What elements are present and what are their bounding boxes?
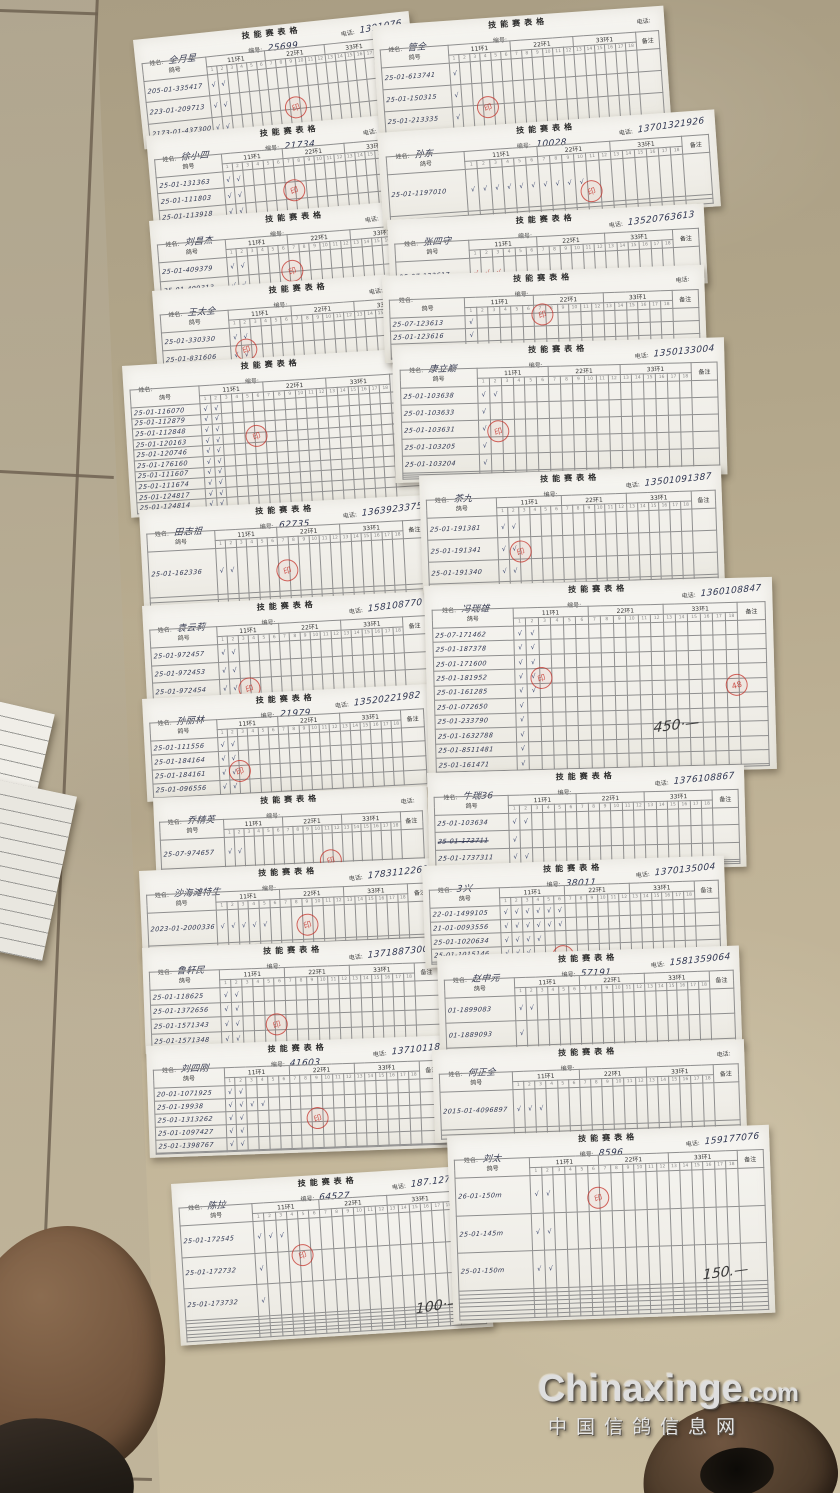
score-cell: [608, 383, 620, 400]
score-cell: [555, 931, 566, 945]
check-mark: √: [502, 545, 506, 553]
score-cell: [359, 393, 370, 404]
score-cell: [580, 311, 592, 325]
score-cell: [285, 398, 296, 409]
note-cell: [637, 48, 662, 71]
score-cell: √: [232, 1002, 243, 1017]
note-cell: [710, 988, 735, 1014]
score-cell: [613, 623, 626, 638]
score-cell: [590, 682, 603, 697]
score-cell: [682, 553, 694, 575]
score-cell: [645, 991, 657, 1016]
check-mark: √: [250, 1100, 254, 1108]
score-cell: √: [202, 435, 213, 446]
score-cell: [377, 1119, 388, 1132]
score-cell: √: [225, 1098, 236, 1111]
score-cell: [538, 625, 551, 640]
score-cell: [664, 665, 677, 680]
phone-label: 电话:: [716, 1050, 731, 1058]
score-cell: [649, 309, 661, 323]
score-cell: [268, 473, 279, 484]
score-cell: [628, 695, 641, 710]
score-cell: [696, 1307, 708, 1312]
phone-field: 电话: 1370135004: [634, 854, 716, 881]
score-cell: [668, 381, 680, 398]
score-cell: [714, 649, 727, 664]
score-cell: [663, 622, 676, 637]
score-cell: [222, 412, 233, 423]
score-cell: [674, 927, 685, 941]
score-cell: [338, 395, 349, 406]
score-cell: [602, 992, 614, 1017]
note-cell: [415, 995, 440, 1010]
check-mark: √: [543, 181, 548, 189]
phone-value: 13520221982: [354, 690, 421, 708]
note-cell: [740, 692, 768, 707]
ring-number-cell: 25-01-191340: [429, 560, 500, 584]
score-cell: √: [509, 813, 521, 831]
score-cell: [351, 1012, 362, 1027]
score-cell: [371, 414, 382, 425]
score-cell: [588, 624, 601, 639]
score-cell: [580, 993, 592, 1018]
score-cell: [620, 382, 632, 399]
score-cell: [393, 756, 404, 771]
score-cell: [610, 451, 622, 468]
score-cell: [331, 760, 342, 775]
score-cell: [271, 1332, 282, 1336]
score-cell: [615, 681, 628, 696]
score-cell: [362, 1012, 373, 1027]
score-cell: [236, 475, 247, 486]
score-cell: [301, 482, 312, 493]
score-cell: [640, 695, 653, 710]
score-cell: [713, 621, 726, 636]
score-cell: [378, 1132, 389, 1145]
score-cell: [661, 308, 673, 322]
score-cell: [491, 454, 503, 471]
score-cell: [702, 825, 714, 843]
ring-number: 25-01-330330: [162, 334, 215, 346]
score-form: 技能赛表格 姓名: 刘太 编号: 8596 电话: 159177076 鸽号 1…: [447, 1125, 775, 1324]
score-cell: [645, 433, 657, 450]
score-cell: [640, 680, 653, 695]
ring-number: 25-01-111556: [151, 741, 204, 752]
score-cell: [688, 989, 700, 1014]
score-cell: [601, 652, 614, 667]
check-mark: √: [525, 852, 529, 860]
score-cell: [626, 310, 638, 324]
score-cell: [287, 440, 298, 451]
score-cell: [540, 697, 553, 712]
check-mark: √: [226, 176, 231, 184]
score-cell: [250, 778, 261, 793]
note-column-header: 备注: [682, 134, 710, 154]
score-cell: [725, 620, 738, 635]
score-cell: √: [204, 467, 215, 478]
check-mark: √: [206, 447, 211, 455]
score-cell: [248, 485, 259, 496]
score-cell: [513, 385, 525, 402]
check-mark: √: [537, 1265, 541, 1273]
score-cell: [603, 310, 615, 324]
score-cell: √: [498, 537, 510, 559]
score-cell: [322, 774, 333, 789]
score-cell: [285, 409, 296, 420]
score-cell: [345, 1133, 356, 1146]
check-mark: √: [493, 390, 497, 398]
score-cell: [609, 400, 621, 417]
score-cell: [566, 740, 579, 755]
score-cell: [684, 899, 695, 913]
score-cell: [578, 711, 591, 726]
score-cell: [525, 402, 537, 419]
phone-field: 电话: 1363923375: [341, 493, 423, 522]
score-cell: √: [489, 386, 501, 403]
score-cell: [263, 986, 274, 1001]
score-cell: [629, 738, 642, 753]
check-mark: √: [512, 818, 516, 826]
score-cell: √: [257, 1097, 268, 1110]
phone-value: 1376108867: [674, 771, 735, 787]
score-cell: [589, 653, 602, 668]
score-cell: [354, 1081, 365, 1094]
ring-number-cell: 25-01-150m: [458, 1251, 534, 1291]
phone-field: 电话: 13501091387: [625, 464, 713, 492]
score-cell: [258, 474, 269, 485]
ring-number: 25-01-161285: [434, 688, 488, 697]
phone-label: 电话:: [334, 701, 349, 710]
score-cell: [592, 1018, 604, 1043]
check-mark: √: [242, 921, 247, 929]
score-cell: [362, 436, 373, 447]
note-column-header: 备注: [712, 789, 738, 808]
check-mark: √: [241, 1139, 245, 1147]
check-mark: √: [530, 629, 534, 637]
score-cell: [367, 1119, 378, 1132]
score-cell: [329, 427, 340, 438]
score-cell: [525, 385, 537, 402]
score-cell: [288, 451, 299, 462]
score-cell: [614, 667, 627, 682]
check-mark: √: [261, 1100, 265, 1108]
score-cell: √: [237, 1137, 248, 1150]
ring-number: 25-07-171462: [433, 630, 487, 639]
score-cell: [529, 727, 542, 742]
score-cell: [546, 326, 558, 340]
ring-number: 25-01-096556: [153, 784, 206, 795]
score-cell: [549, 384, 561, 401]
ring-number-cell: 25-01-103205: [402, 437, 480, 456]
note-column-header: 备注: [691, 362, 718, 381]
score-cell: [500, 314, 512, 328]
score-cell: [600, 828, 612, 846]
score-cell: [632, 382, 644, 399]
score-cell: [356, 1132, 367, 1145]
score-cell: [393, 996, 404, 1011]
score-cell: [550, 435, 562, 452]
score-cell: [380, 392, 391, 403]
phone-label: 电话:: [634, 352, 649, 360]
score-cell: [296, 985, 307, 1000]
score-cell: [671, 531, 683, 553]
note-cell: [696, 925, 721, 939]
score-cell: [364, 478, 375, 489]
score-cell: [634, 450, 646, 467]
score-cell: [691, 751, 704, 766]
note-cell: [692, 414, 719, 432]
check-mark: √: [531, 643, 535, 651]
score-cell: [501, 385, 513, 402]
check-mark: √: [531, 658, 535, 666]
score-cell: [690, 693, 703, 708]
score-cell: [394, 1325, 405, 1329]
score-cell: [651, 651, 664, 666]
score-cell: [555, 829, 567, 847]
score-cell: [281, 1148, 292, 1150]
score-cell: [223, 434, 234, 445]
ring-number: 01-1899083: [446, 1005, 492, 1015]
check-mark: √: [231, 740, 236, 748]
score-cell: [373, 772, 384, 787]
score-cell: [350, 997, 361, 1012]
score-cell: [680, 381, 692, 398]
score-cell: [539, 640, 552, 655]
score-cell: [264, 399, 275, 410]
score-cell: [298, 440, 309, 451]
score-cell: [383, 434, 394, 445]
phone-label: 电话:: [636, 17, 651, 26]
score-cell: [656, 1015, 668, 1040]
score-cell: [574, 452, 586, 469]
ring-number: 25-01-172545: [182, 1235, 235, 1246]
check-mark: √: [521, 745, 525, 753]
score-cell: [623, 827, 635, 845]
score-cell: [375, 477, 386, 488]
score-cell: [610, 434, 622, 451]
score-cell: [278, 462, 289, 473]
score-cell: [662, 1308, 674, 1313]
score-cell: [633, 416, 645, 433]
score-cell: √: [465, 315, 477, 329]
score-cell: [404, 996, 415, 1011]
score-cell: [645, 827, 657, 845]
score-cell: [659, 510, 671, 532]
score-cell: [679, 826, 691, 844]
score-cell: [581, 1311, 593, 1316]
score-cell: [551, 639, 564, 654]
ring-number: 25-01-1398767: [156, 1140, 214, 1150]
score-cell: [333, 1082, 344, 1095]
score-cell: [563, 625, 576, 640]
score-cell: √: [479, 437, 491, 454]
score-cell: [383, 445, 394, 456]
score-cell: [242, 1001, 253, 1016]
score-cell: √: [477, 386, 489, 403]
score-cell: [633, 433, 645, 450]
note-column-header: 备注: [672, 289, 698, 308]
check-mark: √: [483, 459, 487, 467]
score-cell: [639, 555, 651, 577]
score-cell: [341, 745, 352, 760]
score-cell: √: [526, 995, 538, 1020]
ring-number: 25-01-972454: [153, 685, 206, 696]
check-mark: √: [547, 920, 551, 928]
phone-label: 电话:: [340, 29, 355, 38]
check-mark: √: [520, 716, 524, 724]
score-cell: [574, 535, 586, 557]
score-cell: [352, 458, 363, 469]
phone-field: 电话:: [715, 1040, 736, 1061]
score-cell: √: [500, 905, 511, 919]
score-cell: [681, 449, 693, 466]
score-cell: [541, 536, 553, 558]
score-cell: [651, 900, 662, 914]
score-cell: [551, 514, 563, 536]
score-cell: [652, 680, 665, 695]
score-cell: [309, 732, 320, 747]
score-cell: [566, 829, 578, 847]
score-cell: [531, 812, 543, 830]
score-cell: [361, 1327, 372, 1331]
score-cell: [630, 901, 641, 915]
check-mark: √: [470, 331, 474, 339]
score-cell: [306, 397, 317, 408]
check-mark: √: [208, 479, 213, 487]
check-mark: √: [537, 921, 541, 929]
score-cell: [677, 990, 689, 1015]
phone-label: 电话:: [609, 221, 624, 230]
score-cell: [652, 914, 663, 928]
score-cell: [290, 483, 301, 494]
score-cell: [243, 411, 254, 422]
score-cell: [268, 1097, 279, 1110]
score-cell: [286, 419, 297, 430]
score-cell: [543, 830, 555, 848]
note-cell: [673, 321, 699, 335]
score-cell: √: [511, 905, 522, 919]
score-cell: √: [203, 456, 214, 467]
score-cell: [275, 420, 286, 431]
ring-number: 25-01-162336: [149, 568, 202, 579]
score-cell: √: [512, 932, 523, 946]
score-cell: [246, 1085, 257, 1098]
score-cell: √: [514, 640, 527, 655]
check-mark: √: [221, 80, 226, 88]
score-cell: [626, 652, 639, 667]
note-column-header: 备注: [713, 1064, 738, 1083]
score-cell: [570, 1312, 582, 1317]
score-cell: [257, 463, 268, 474]
score-cell: [321, 470, 332, 481]
score-cell: [300, 1083, 311, 1096]
score-cell: √: [220, 987, 231, 1002]
score-cell: [577, 930, 588, 944]
score-cell: [681, 432, 693, 449]
score-cell: [624, 1016, 636, 1041]
score-cell: [279, 1084, 290, 1097]
phone-field: 电话: 1376108867: [654, 763, 736, 790]
note-cell: [403, 634, 427, 653]
score-cell: [332, 774, 343, 789]
score-cell: [639, 666, 652, 681]
score-cell: [596, 383, 608, 400]
score-cell: [703, 708, 716, 723]
score-cell: [700, 621, 713, 636]
check-mark: √: [520, 701, 524, 709]
score-cell: [270, 1148, 281, 1150]
score-cell: [342, 759, 353, 774]
score-cell: [587, 916, 598, 930]
score-cell: [270, 1135, 281, 1148]
score-cell: [609, 417, 621, 434]
score-cell: [321, 760, 332, 775]
score-cell: [603, 710, 616, 725]
check-mark: √: [257, 1233, 262, 1241]
check-mark: √: [225, 1035, 229, 1043]
score-table: 鸽号 11环1 22环1 33环1 备注 1234567891011121314…: [153, 1060, 447, 1155]
score-cell: [303, 1147, 314, 1149]
score-cell: [669, 415, 681, 432]
phone-field: 电话: 1350133004: [633, 336, 715, 363]
score-cell: [538, 436, 550, 453]
ring-number-cell: 25-01-103204: [402, 455, 480, 474]
score-cell: [541, 741, 554, 756]
score-cell: [645, 416, 657, 433]
score-cell: [613, 1017, 625, 1042]
score-cell: [410, 1131, 422, 1144]
check-mark: √: [504, 922, 508, 930]
ring-number-cell: 2023-01-2000336: [147, 910, 218, 946]
phone-field: 电话: 13710118: [371, 1034, 441, 1060]
score-cell: [277, 441, 288, 452]
score-cell: [598, 434, 610, 451]
score-cell: [542, 755, 555, 770]
score-cell: [622, 450, 634, 467]
score-cell: [663, 913, 674, 927]
score-cell: [617, 753, 630, 768]
score-cell: [627, 1310, 639, 1315]
note-cell: [695, 898, 720, 912]
score-cell: [290, 1096, 301, 1109]
score-cell: [409, 1079, 421, 1092]
score-cell: [410, 1118, 422, 1131]
ring-number: 22-01-1499105: [430, 909, 488, 919]
ring-number-cell: 25-01-103634: [435, 813, 509, 832]
score-cell: [576, 903, 587, 917]
score-cell: [656, 381, 668, 398]
score-cell: [607, 556, 619, 578]
check-mark: √: [546, 1190, 550, 1198]
score-cell: [673, 913, 684, 927]
check-mark: √: [504, 908, 508, 916]
score-cell: [276, 430, 287, 441]
ring-number: 25-01-1313262: [155, 1114, 213, 1124]
score-cell: [714, 664, 727, 679]
check-mark: √: [217, 457, 222, 465]
ring-number-cell: 25-01-145m: [457, 1213, 533, 1253]
score-cell: [703, 736, 716, 751]
score-cell: [611, 810, 623, 828]
score-cell: [502, 402, 514, 419]
note-cell: [401, 829, 424, 859]
phone-value: 1581359064: [669, 952, 730, 968]
score-cell: [576, 624, 589, 639]
note-cell: [713, 807, 739, 825]
score-cell: [291, 776, 302, 791]
score-cell: [540, 514, 552, 536]
score-cell: [366, 1106, 377, 1119]
